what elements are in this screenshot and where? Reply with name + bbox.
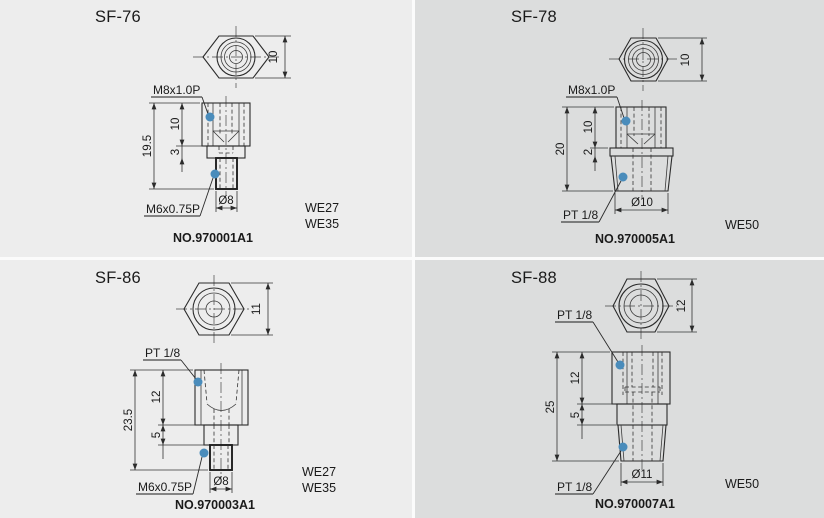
panel-sf-86: SF-86 11 [0,260,412,518]
panel-sf-78: SF-78 10 [415,0,824,257]
thread-label-upper: PT 1/8 [145,346,180,360]
top-view: 12 [605,271,697,340]
dim-diameter: Ø10 [631,197,653,209]
part-title: SF-78 [511,8,557,26]
side-view: 20 10 2 Ø10 M8x1.0P PT 1/8 [555,83,673,222]
thread-marker-dot-icon [206,113,215,122]
drawing-sf-86: SF-86 11 [0,260,412,518]
dim-hex-height: 10 [268,51,280,64]
thread-marker-dot-icon [619,173,628,182]
dim-diameter: Ø11 [632,469,653,481]
dim-upper: 10 [170,118,182,131]
wrench-size: WE35 [302,481,336,495]
drawing-sf-78: SF-78 10 [415,0,824,257]
fittings-catalog-page: SF-76 10 [0,0,824,518]
thread-marker-dot-icon [194,378,203,387]
dim-upper: 12 [151,391,163,404]
wrench-size: WE35 [305,217,339,231]
thread-marker-dot-icon [616,361,625,370]
side-view: 23.5 12 5 Ø8 PT 1/8 M6x0.75P [123,346,248,494]
part-number: NO.970007A1 [595,497,675,511]
dim-diameter: Ø8 [218,195,233,207]
thread-marker-dot-icon [622,117,631,126]
dim-mid: 5 [151,432,163,438]
part-number: NO.970001A1 [173,231,253,245]
wrench-size: WE50 [725,477,759,491]
dim-hex-height: 10 [680,54,692,67]
thread-label-upper: M8x1.0P [153,83,200,97]
thread-label-upper: M8x1.0P [568,83,615,97]
wrench-size: WE50 [725,218,759,232]
dim-overall: 20 [555,143,567,156]
dim-overall: 23.5 [123,409,135,431]
side-view: 25 12 5 Ø11 PT 1/8 PT 1/8 [545,308,670,494]
thread-label-lower: PT 1/8 [563,208,598,222]
panel-sf-88: SF-88 12 [415,260,824,518]
drawing-sf-88: SF-88 12 [415,260,824,518]
thread-marker-dot-icon [200,449,209,458]
dim-hex-height: 12 [676,300,688,313]
part-title: SF-86 [95,269,141,287]
thread-label-lower: M6x0.75P [146,202,200,216]
part-number: NO.970005A1 [595,232,675,246]
part-title: SF-76 [95,8,141,26]
top-view: 10 [609,28,707,91]
thread-label-lower: M6x0.75P [138,480,192,494]
dim-upper: 10 [583,121,595,134]
dim-mid: 5 [570,412,582,418]
dim-mid: 3 [170,149,182,155]
side-view: 19.5 10 3 Ø8 M8x1.0P M6x0.75P [142,83,250,216]
top-view: 10 [193,26,291,88]
dim-mid: 2 [583,149,595,155]
thread-marker-dot-icon [619,443,628,452]
part-title: SF-88 [511,269,557,287]
thread-marker-dot-icon [211,170,220,179]
wrench-size: WE27 [305,201,339,215]
dim-hex-height: 11 [251,303,263,315]
part-number: NO.970003A1 [175,498,255,512]
wrench-size: WE27 [302,465,336,479]
dim-overall: 19.5 [142,135,154,157]
thread-label-upper: PT 1/8 [557,308,592,322]
thread-label-lower: PT 1/8 [557,480,592,494]
dim-overall: 25 [545,401,557,414]
dim-diameter: Ø8 [213,476,228,488]
top-view: 11 [176,275,273,344]
dim-upper: 12 [570,372,582,385]
drawing-sf-76: SF-76 10 [0,0,412,257]
panel-sf-76: SF-76 10 [0,0,412,257]
